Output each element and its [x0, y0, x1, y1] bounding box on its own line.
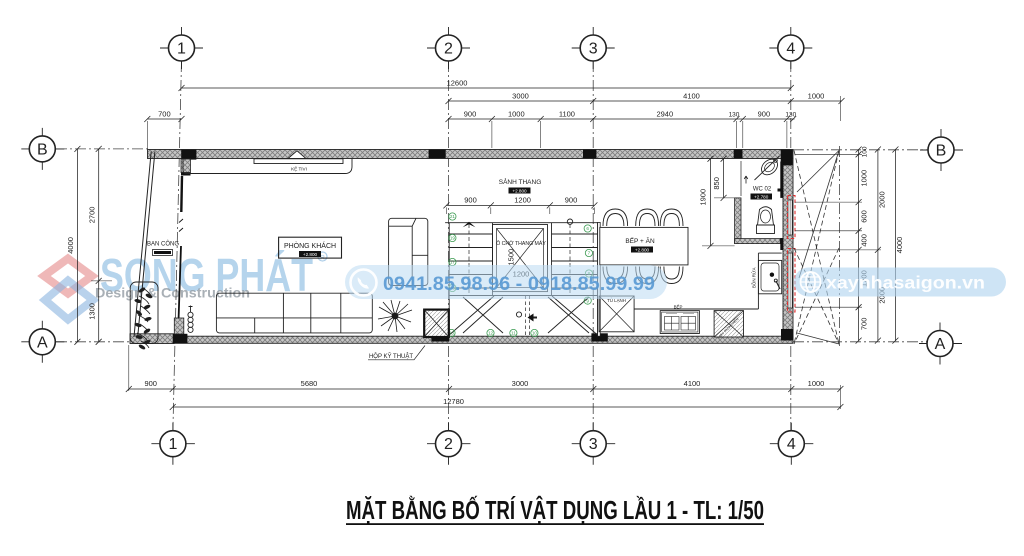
svg-text:1000: 1000: [860, 170, 869, 187]
svg-text:Ô CHỜ THANG MÁY: Ô CHỜ THANG MÁY: [496, 240, 546, 247]
svg-text:1500: 1500: [507, 249, 516, 266]
svg-text:B: B: [37, 141, 48, 158]
svg-text:4000: 4000: [66, 237, 75, 254]
svg-text:10: 10: [532, 331, 538, 336]
svg-text:+2.800: +2.800: [635, 247, 650, 252]
svg-text:1000: 1000: [808, 379, 825, 388]
svg-text:7: 7: [588, 251, 591, 256]
svg-text:700: 700: [158, 110, 171, 119]
svg-text:850: 850: [712, 177, 721, 190]
svg-text:4100: 4100: [684, 379, 701, 388]
svg-text:130: 130: [729, 112, 740, 119]
svg-text:PHÒNG KHÁCH: PHÒNG KHÁCH: [284, 241, 336, 250]
svg-text:1100: 1100: [559, 110, 575, 119]
svg-text:+2.780: +2.780: [754, 194, 769, 199]
svg-text:4: 4: [786, 41, 795, 58]
svg-text:BAN CÔNG: BAN CÔNG: [147, 241, 179, 248]
svg-text:600: 600: [860, 210, 869, 223]
svg-text:900: 900: [565, 195, 578, 204]
svg-text:2700: 2700: [88, 207, 97, 224]
svg-text:KỆ TIVI: KỆ TIVI: [291, 165, 307, 172]
svg-text:17: 17: [450, 260, 456, 265]
svg-text:+2.800: +2.800: [512, 188, 527, 193]
svg-text:1900: 1900: [699, 189, 708, 206]
svg-text:900: 900: [758, 110, 771, 119]
svg-text:12: 12: [488, 331, 494, 336]
svg-text:2: 2: [444, 41, 453, 58]
svg-text:12600: 12600: [447, 79, 468, 88]
svg-text:900: 900: [464, 110, 477, 119]
svg-text:3000: 3000: [512, 92, 529, 101]
svg-text:700: 700: [860, 318, 869, 331]
svg-text:SẢNH THANG: SẢNH THANG: [499, 177, 542, 186]
svg-text:1000: 1000: [808, 92, 825, 101]
svg-text:9: 9: [586, 298, 589, 303]
svg-text:21: 21: [450, 214, 456, 219]
svg-text:1300: 1300: [88, 303, 97, 320]
svg-text:3: 3: [589, 436, 598, 453]
svg-text:3: 3: [589, 41, 598, 58]
svg-text:BỒN RỬA: BỒN RỬA: [752, 267, 757, 288]
svg-text:WC 02: WC 02: [753, 187, 772, 193]
svg-text:B: B: [936, 143, 947, 160]
svg-text:1000: 1000: [508, 110, 525, 119]
svg-text:4000: 4000: [895, 237, 904, 254]
svg-text:4: 4: [787, 436, 796, 453]
svg-text:0941.85.98.96 - 0918.85.99.99: 0941.85.98.96 - 0918.85.99.99: [383, 273, 655, 295]
svg-text:HỘP KỸ THUẬT: HỘP KỸ THUẬT: [369, 353, 413, 360]
svg-text:400: 400: [860, 234, 869, 247]
svg-text:1: 1: [168, 436, 177, 453]
svg-text:xaynhasaigon.vn: xaynhasaigon.vn: [826, 273, 985, 293]
svg-text:900: 900: [464, 195, 477, 204]
svg-text:3000: 3000: [512, 379, 529, 388]
svg-text:1: 1: [177, 41, 186, 58]
svg-text:6: 6: [586, 226, 589, 231]
svg-text:2: 2: [444, 436, 453, 453]
svg-text:+2.800: +2.800: [303, 252, 318, 257]
svg-text:4100: 4100: [683, 92, 700, 101]
svg-text:2000: 2000: [878, 191, 887, 208]
svg-text:900: 900: [144, 379, 157, 388]
svg-text:1200: 1200: [514, 195, 531, 204]
svg-text:19: 19: [450, 236, 456, 241]
svg-text:MẶT BẰNG BỐ TRÍ VẬT DỤNG LẦU 1: MẶT BẰNG BỐ TRÍ VẬT DỤNG LẦU 1 - TL: 1/5…: [346, 495, 764, 525]
svg-text:100: 100: [862, 146, 869, 157]
svg-text:5680: 5680: [301, 379, 318, 388]
svg-text:130: 130: [785, 112, 796, 119]
svg-text:11: 11: [511, 331, 516, 336]
svg-text:A: A: [935, 336, 946, 353]
svg-text:A: A: [37, 334, 48, 351]
svg-text:BẾP: BẾP: [674, 305, 683, 310]
svg-text:12780: 12780: [443, 397, 464, 406]
svg-text:2940: 2940: [656, 110, 673, 119]
